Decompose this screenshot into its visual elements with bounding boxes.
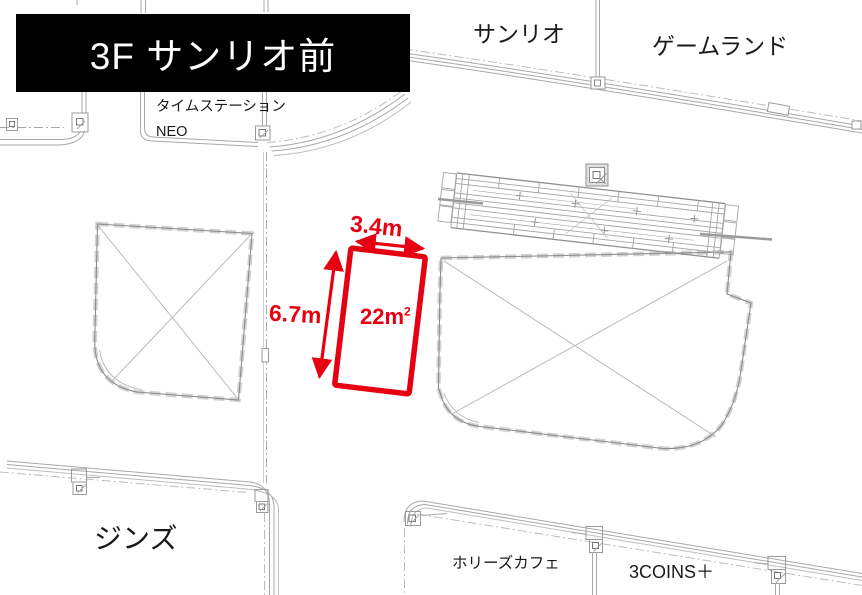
area-value: 22 [360,304,384,329]
dimension-width-label: 3.4m [349,210,404,243]
store-label-time-station-neo-line2: NEO [156,120,286,145]
area-unit: m [384,304,404,329]
left-store-outline [95,224,252,400]
dimension-arrow-depth [320,252,337,377]
corridor-centerline [262,152,269,483]
store-label-sanrio: サンリオ [473,21,565,49]
store-label-gameland: ゲームランド [652,33,788,61]
store-label-3coins: 3COINS＋ [629,562,714,584]
floor-banner-title: 3F サンリオ前 [90,26,336,80]
floorplan-canvas: 3F サンリオ前 サンリオ ゲームランド タイムステーション NEO ジンズ ホ… [0,0,862,595]
area-label: 22m2 [360,304,411,330]
store-label-hollys-cafe: ホリーズカフェ [452,555,560,574]
escalator-column [586,164,608,186]
store-topleft-walls [0,92,88,145]
store-label-time-station-neo: タイムステーション NEO [156,95,286,146]
area-exponent: 2 [404,305,411,319]
store-label-time-station-neo-line1: タイムステーション [156,95,286,120]
store-label-jins: ジンズ [94,522,177,556]
dimension-depth-label: 6.7m [268,300,322,330]
floor-banner: 3F サンリオ前 [16,14,410,92]
main-store-outline [439,252,752,449]
